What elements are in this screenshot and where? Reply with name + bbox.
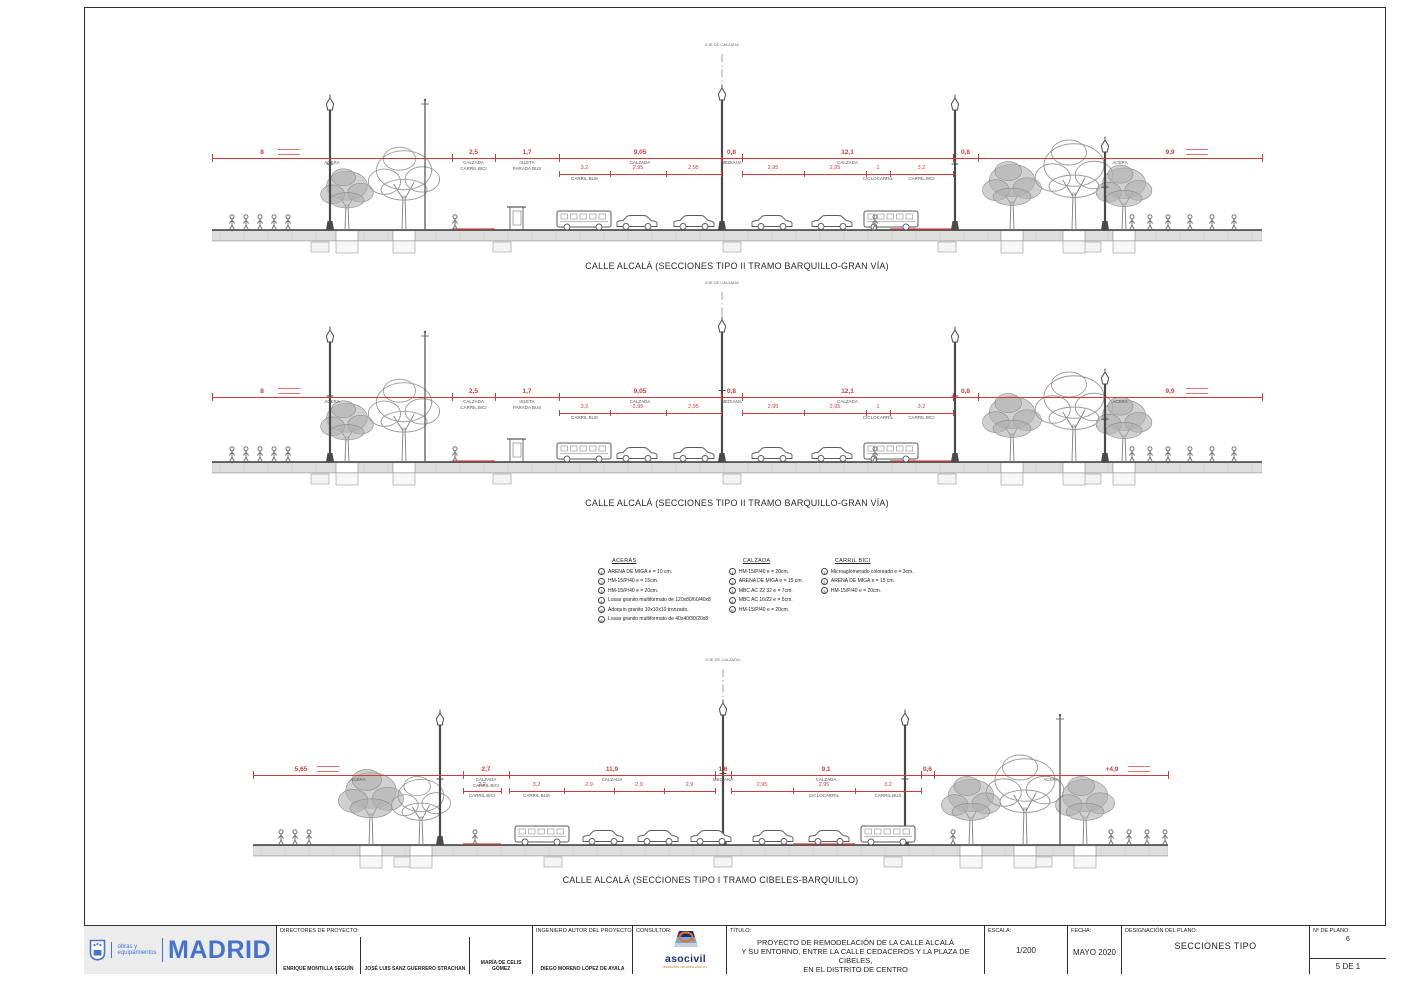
plan-number-label: Nº DE PLANO: (1313, 928, 1350, 934)
legend-item: 4Losas granito multiformato de 120x80/60… (598, 597, 711, 604)
dimension-tick (212, 154, 213, 162)
dimension-value: 9,9 (1165, 388, 1174, 395)
dimension-subline (866, 413, 890, 414)
dimension-label: CARRIL BUS (571, 176, 598, 181)
dimension-tick (953, 410, 954, 416)
dimension-line (463, 775, 509, 776)
dimension-value: 2,95 (633, 165, 644, 171)
scale-value: 1/200 (985, 946, 1067, 955)
dimension-tick (452, 154, 453, 162)
dimension-value: 2,95 (688, 165, 699, 171)
dimension-note (278, 388, 300, 394)
dimension-value: +4,9 (1106, 766, 1119, 773)
dimension-value: 12,1 (841, 149, 854, 156)
legend-text: ARENA DE MIGA e = 10 cm. (608, 569, 672, 575)
dimension-tick (721, 410, 722, 416)
dimension-value: 3,2 (884, 782, 892, 788)
scale-cell: ESCALA: 1/200 (985, 926, 1068, 974)
dimension-value: 2,9 (635, 782, 643, 788)
dimension-value: 2,9 (686, 782, 694, 788)
legend-text: ARENA DE MIGA e = 15 cm. (831, 578, 895, 584)
legend-column: ACERAS1ARENA DE MIGA e = 10 cm.2HM-15/P/… (598, 558, 711, 625)
legend-item: 2ARENA DE MIGA e = 15 cm. (729, 578, 803, 585)
dimension-value: 0,6 (923, 766, 932, 773)
logo-department: obras y equipamientos (117, 944, 156, 957)
legend-text: HM-15/P/40 e = 15cm. (608, 578, 658, 584)
dimension-label: CICLOCARRIL (809, 793, 839, 798)
dimension-label: PARADA BUS (513, 166, 541, 171)
dimension-label: ACERA (1112, 399, 1128, 404)
date-value: MAYO 2020 (1068, 948, 1121, 957)
legend-key-icon: 3 (729, 587, 736, 594)
dimension-label: ACERA (350, 777, 366, 782)
axis-label: EJE DE CALZADA (705, 42, 739, 47)
materials-legend: ACERAS1ARENA DE MIGA e = 10 cm.2HM-15/P/… (598, 558, 914, 625)
dimension-value: 1,6 (718, 766, 727, 773)
dimension-tick (212, 393, 213, 401)
dimension-note (278, 149, 300, 155)
dimension-tick (559, 410, 560, 416)
title-block: obras y equipamientos MADRID DIRECTORES … (84, 925, 1386, 974)
dimension-tick (463, 771, 464, 779)
dimension-subline (509, 791, 564, 792)
madrid-crest-icon (89, 939, 106, 961)
dimension-label: ACERA (324, 399, 340, 404)
asocivil-logo: asocivil asesores de obra civil s.l. (647, 930, 724, 969)
director-name: ENRIQUE MONTILLA SEGUÍN (277, 937, 360, 974)
plan-number-top: Nº DE PLANO: 6 (1310, 926, 1386, 959)
dimension-value: 2,2 (478, 782, 486, 788)
legend-text: HM-15/P/40 e = 20cm. (739, 569, 789, 575)
dimension-tick (253, 771, 254, 779)
legend-title: CARRIL BICI (835, 558, 914, 564)
dimension-value: 3,2 (533, 782, 541, 788)
plan-number-cell: Nº DE PLANO: 6 5 DE 1 (1310, 926, 1386, 974)
dimension-tick (1262, 393, 1263, 401)
legend-key-icon: 1 (598, 568, 605, 575)
dimension-subline (890, 413, 953, 414)
legend-text: MBC AC 16/22 e = 5cm. (739, 597, 793, 603)
dimension-tick (890, 410, 891, 416)
dimension-label: CARRIL BICI (469, 793, 495, 798)
dimension-label: CARRIL BICI (908, 415, 934, 420)
dimension-subline (564, 791, 614, 792)
axis-label: EJE DE CALZADA (706, 657, 740, 662)
dimension-value: 2,95 (768, 404, 779, 410)
director-name: MARÍA DE CELIS GÓMEZ (469, 937, 532, 974)
dimension-label: ACERA (1043, 777, 1059, 782)
dimension-tick (509, 788, 510, 794)
scale-label: ESCALA: (988, 928, 1011, 934)
logo-divider (162, 938, 164, 962)
dimension-tick (804, 171, 805, 177)
dimension-line (721, 397, 742, 398)
dimension-value: 1 (876, 404, 879, 410)
dimension-tick (559, 171, 560, 177)
dimension-line (953, 158, 978, 159)
dimension-value: 9,05 (634, 388, 647, 395)
dimension-tick (452, 393, 453, 401)
dimension-note (317, 766, 339, 772)
legend-item: 1Microaglomerado coloreado e = 3cm. (821, 568, 914, 575)
dimension-subline (559, 413, 610, 414)
dimension-tick (855, 788, 856, 794)
legend-text: ARENA DE MIGA e = 15 cm. (739, 578, 803, 584)
dimension-tick (495, 154, 496, 162)
legend-item: 3HM-15/P/40 e = 20cm. (598, 587, 711, 594)
dimension-line (495, 158, 559, 159)
dimension-value: 0,8 (961, 388, 970, 395)
dimension-tick (978, 393, 979, 401)
dimension-tick (666, 171, 667, 177)
dimension-value: 2,9 (585, 782, 593, 788)
dimension-tick (463, 788, 464, 794)
dimension-value: 9,9 (1165, 149, 1174, 156)
legend-column: CARRIL BICI1Microaglomerado coloreado e … (821, 558, 914, 625)
dimension-tick (934, 771, 935, 779)
plan-page: 5 DE 1 (1310, 958, 1386, 974)
dimension-tick (501, 788, 502, 794)
madrid-logo: obras y equipamientos MADRID (84, 926, 277, 974)
legend-column: CALZADA1HM-15/P/40 e = 20cm.2ARENA DE MI… (729, 558, 803, 625)
dimension-value: 0,8 (727, 149, 736, 156)
dimension-value: 0,8 (727, 388, 736, 395)
dimension-line (212, 397, 452, 398)
dimension-tick (921, 771, 922, 779)
dimension-tick (731, 771, 732, 779)
dimension-value: 1 (876, 165, 879, 171)
title-label: TÍTULO: (730, 928, 751, 934)
dimension-subline (742, 413, 804, 414)
dimension-tick (1262, 154, 1263, 162)
dimension-subline (559, 174, 610, 175)
dimension-line (452, 397, 495, 398)
dimension-label: CARRIL BICI (460, 166, 486, 171)
dimension-tick (614, 788, 615, 794)
dimension-value: 3,2 (581, 165, 589, 171)
date-label: FECHA: (1071, 928, 1091, 934)
legend-text: HM-15/P/40 e = 20cm. (739, 607, 789, 613)
legend-title: CALZADA (743, 558, 803, 564)
section-caption: CALLE ALCALÁ (SECCIONES TIPO II TRAMO BA… (212, 261, 1262, 271)
asocivil-icon (671, 930, 701, 949)
dimension-value: 3,2 (581, 404, 589, 410)
dimension-value: 2,95 (757, 782, 768, 788)
dimension-line (721, 158, 742, 159)
dimension-label: CARRIL BICI (908, 176, 934, 181)
dimension-tick (610, 171, 611, 177)
legend-text: HM-15/P/40 e = 20cm. (831, 588, 881, 594)
dimension-value: 2,5 (469, 388, 478, 395)
dimension-value: 2,95 (830, 165, 841, 171)
dimension-subline (610, 413, 666, 414)
legend-item: 5Adoquín granito 10x10x10 tronzado. (598, 606, 711, 613)
dimension-tick (559, 154, 560, 162)
dimension-value: 2,5 (469, 149, 478, 156)
legend-key-icon: 1 (729, 568, 736, 575)
dimension-line (921, 775, 934, 776)
dimension-label: CALZADA (463, 399, 484, 404)
legend-text: HM-15/P/40 e = 20cm. (608, 588, 658, 594)
dimension-tick (664, 788, 665, 794)
dimension-subline (890, 174, 953, 175)
dimension-note (1128, 766, 1150, 772)
dimension-value: 2,7 (481, 766, 490, 773)
dimension-tick (564, 788, 565, 794)
engineer-label: INGENIERO AUTOR DEL PROYECTO: (536, 928, 633, 934)
cross-section-drawing (253, 655, 1168, 888)
designation-label: DESIGNACIÓN DEL PLANO: (1125, 928, 1197, 934)
dimension-subline (666, 413, 721, 414)
legend-key-icon: 6 (598, 616, 605, 623)
legend-item: 3MBC AC 22 32 e = 7cm. (729, 587, 803, 594)
dimension-tick (890, 171, 891, 177)
legend-item: 5HM-15/P/40 e = 20cm. (729, 606, 803, 613)
dimension-subline (804, 413, 866, 414)
dimension-subline (866, 174, 890, 175)
legend-key-icon: 3 (598, 587, 605, 594)
dimension-label: CARRIL BICI (460, 405, 486, 410)
dimension-label: CARRIL BUS (523, 793, 550, 798)
dimension-tick (921, 788, 922, 794)
legend-item: 1HM-15/P/40 e = 20cm. (729, 568, 803, 575)
dimension-subline (664, 791, 715, 792)
dimension-value: 9,05 (634, 149, 647, 156)
project-title-cell: TÍTULO: PROYECTO DE REMODELACIÓN DE LA C… (727, 926, 985, 974)
dimension-tick (721, 171, 722, 177)
legend-item: 6Losas granito multiformato de 40x40/30/… (598, 616, 711, 623)
legend-key-icon: 1 (821, 568, 828, 575)
dimension-note (1186, 149, 1208, 155)
dimension-tick (731, 788, 732, 794)
dimension-line (253, 775, 463, 776)
dimension-value: 1,7 (522, 149, 531, 156)
legend-key-icon: 4 (598, 597, 605, 604)
legend-key-icon: 2 (598, 578, 605, 585)
dimension-label: CICLOCARRIL (863, 176, 893, 181)
dimension-value: 2,95 (819, 782, 830, 788)
legend-item: 1ARENA DE MIGA e = 10 cm. (598, 568, 711, 575)
dimension-line (509, 775, 715, 776)
dimension-tick (559, 393, 560, 401)
madrid-wordmark: MADRID (168, 936, 271, 965)
legend-item: 3HM-15/P/40 e = 20cm. (821, 587, 914, 594)
engineer-name: DIEGO MORENO LÓPEZ DE AYALA (533, 966, 632, 972)
legend-key-icon: 3 (821, 587, 828, 594)
dimension-subline (742, 174, 804, 175)
legend-key-icon: 2 (729, 578, 736, 585)
legend-item: 2ARENA DE MIGA e = 15 cm. (821, 578, 914, 585)
dimension-label: MEDIANA (721, 160, 742, 165)
dimension-line (934, 775, 1168, 776)
dimension-value: 2,95 (633, 404, 644, 410)
dimension-label: CALZADA (463, 160, 484, 165)
dimension-tick (742, 171, 743, 177)
dimension-label: CARRIL BUS (571, 415, 598, 420)
plan-sheet: { "page": { "accent_red": "#cf3b3b", "ma… (0, 0, 1415, 1000)
dimension-line (212, 158, 452, 159)
dimension-tick (793, 788, 794, 794)
dimension-subline (793, 791, 855, 792)
dimension-note (1186, 388, 1208, 394)
dimension-label: PARADA BUS (513, 405, 541, 410)
legend-text: Microaglomerado coloreado e = 3cm. (831, 569, 914, 575)
section-caption: CALLE ALCALÁ (SECCIONES TIPO I TRAMO CIB… (253, 875, 1168, 885)
dimension-tick (742, 154, 743, 162)
dimension-subline (855, 791, 921, 792)
logo-divider (111, 942, 113, 958)
legend-key-icon: 4 (729, 597, 736, 604)
legend-key-icon: 5 (598, 606, 605, 613)
dimension-line (742, 158, 953, 159)
dimension-value: 12,1 (841, 388, 854, 395)
date-cell: FECHA: MAYO 2020 (1068, 926, 1122, 974)
dimension-value: 8 (260, 149, 264, 156)
dimension-value: 2,95 (688, 404, 699, 410)
dimension-value: 2,95 (768, 165, 779, 171)
dimension-line (742, 397, 953, 398)
dimension-line (559, 397, 721, 398)
dimension-subline (610, 174, 666, 175)
dimension-label: CARRIL BICI (473, 783, 499, 788)
plan-page-value: 5 DE 1 (1310, 962, 1386, 971)
cross-section-tipo-i: EJE DE CALZADA CALLE ALCALÁ (SECCIONES T… (253, 655, 1168, 888)
legend-text: Adoquín granito 10x10x10 tronzado. (608, 607, 689, 613)
dimension-value: 9,1 (821, 766, 830, 773)
dimension-tick (978, 154, 979, 162)
dimension-tick (742, 410, 743, 416)
legend-text: MBC AC 22 32 e = 7cm. (739, 588, 793, 594)
dimension-value: 1,7 (522, 388, 531, 395)
director-name: JOSÉ LUIS SANZ GUERRERO STRACHAN (360, 937, 470, 974)
dimension-label: CICLOCARRIL (863, 415, 893, 420)
axis-label: EJE DE CALZADA (705, 280, 739, 285)
dimension-value: 5,65 (295, 766, 308, 773)
dimension-tick (1168, 771, 1169, 779)
cross-section-drawing (212, 278, 1262, 510)
dimension-subline (804, 174, 866, 175)
dimension-value: 11,9 (606, 766, 618, 773)
engineer-cell: INGENIERO AUTOR DEL PROYECTO: DIEGO MORE… (533, 926, 633, 974)
dimension-tick (953, 171, 954, 177)
dimension-value: 0,8 (961, 149, 970, 156)
dimension-line (559, 158, 721, 159)
dimension-label: MEDIANA (721, 399, 742, 404)
directors-cell: DIRECTORES DE PROYECTO: ENRIQUE MONTILLA… (277, 926, 533, 974)
dimension-label: CALZADA (602, 777, 623, 782)
dimension-label: CARRIL BUS (875, 793, 902, 798)
legend-title: ACERAS (612, 558, 711, 564)
designation-value: SECCIONES TIPO (1122, 941, 1309, 951)
dimension-tick (610, 410, 611, 416)
dimension-tick (804, 410, 805, 416)
project-title: PROYECTO DE REMODELACIÓN DE LA CALLE ALC… (729, 938, 982, 974)
dimension-subline (666, 174, 721, 175)
dimension-value: 3,2 (918, 404, 926, 410)
dimension-label: ISLETA (519, 160, 534, 165)
dimension-line (978, 158, 1262, 159)
dimension-tick (953, 393, 954, 401)
dimension-line (953, 397, 978, 398)
legend-text: Losas granito multiformato de 120x80/60/… (608, 597, 711, 603)
cross-section-tipo-ii-a: EJE DE CALZADA CALLE ALCALÁ (SECCIONES T… (212, 40, 1262, 275)
legend-key-icon: 2 (821, 578, 828, 585)
dimension-label: ISLETA (519, 399, 534, 404)
dimension-tick (666, 410, 667, 416)
dimension-subline (614, 791, 664, 792)
dimension-subline (731, 791, 793, 792)
legend-text: Losas granito multiformato de 40x40/30/2… (608, 616, 708, 622)
designation-cell: DESIGNACIÓN DEL PLANO: SECCIONES TIPO (1122, 926, 1310, 974)
consultant-cell: CONSULTOR: asocivil asesores de obra civ… (633, 926, 727, 974)
dimension-line (452, 158, 495, 159)
dimension-value: 8 (260, 388, 264, 395)
dimension-line (495, 397, 559, 398)
cross-section-tipo-ii-b: EJE DE CALZADA CALLE ALCALÁ (SECCIONES T… (212, 278, 1262, 510)
plan-number-value: 6 (1310, 936, 1386, 943)
dimension-line (731, 775, 921, 776)
directors-names: ENRIQUE MONTILLA SEGUÍN JOSÉ LUIS SANZ G… (277, 937, 532, 974)
dimension-tick (715, 788, 716, 794)
dimension-label: ACERA (324, 160, 340, 165)
legend-key-icon: 5 (729, 606, 736, 613)
dimension-tick (495, 393, 496, 401)
dimension-line (978, 397, 1262, 398)
dimension-tick (953, 154, 954, 162)
dimension-label: ACERA (1112, 160, 1128, 165)
dimension-subline (463, 791, 501, 792)
legend-item: 2HM-15/P/40 e = 15cm. (598, 578, 711, 585)
dimension-line (715, 775, 731, 776)
dimension-tick (509, 771, 510, 779)
dimension-tick (742, 393, 743, 401)
dimension-value: 3,2 (918, 165, 926, 171)
section-caption: CALLE ALCALÁ (SECCIONES TIPO II TRAMO BA… (212, 498, 1262, 508)
dimension-value: 2,95 (830, 404, 841, 410)
legend-item: 4MBC AC 16/22 e = 5cm. (729, 597, 803, 604)
directors-label: DIRECTORES DE PROYECTO: (280, 928, 359, 934)
